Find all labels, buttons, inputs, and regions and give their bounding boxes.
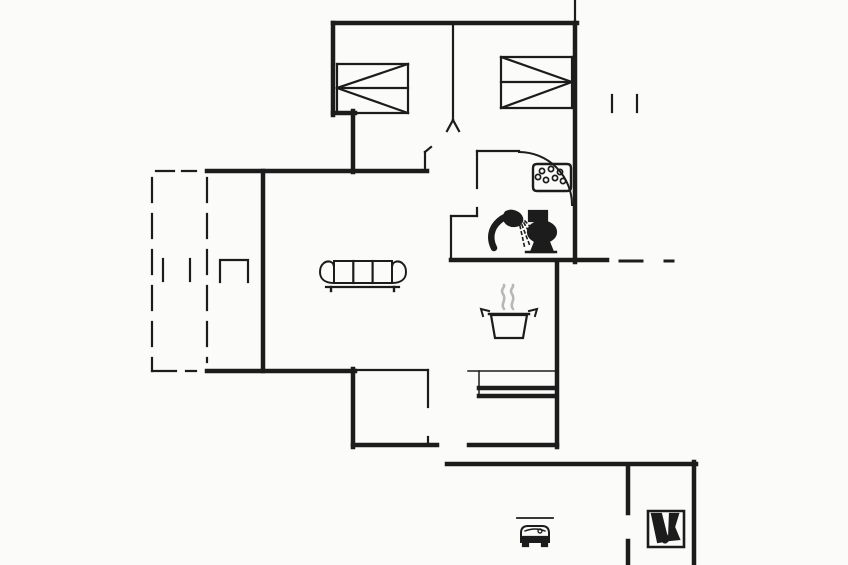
counter-lines [468,371,556,397]
terrace-dashed-outline [152,171,207,371]
floor-plan-svg [0,0,848,565]
floor-plan [0,0,848,565]
cooking-pot-icon [481,285,537,338]
double-bed-icon-bedroom-2 [501,57,572,108]
sofa-icon [320,261,406,291]
tools-shed-icon [648,511,684,547]
terrace-door-jamb [220,260,248,282]
toilet-icon [526,211,556,252]
walls [207,23,696,565]
car-icon [517,518,553,546]
double-bed-icon-bedroom-1 [337,64,408,113]
